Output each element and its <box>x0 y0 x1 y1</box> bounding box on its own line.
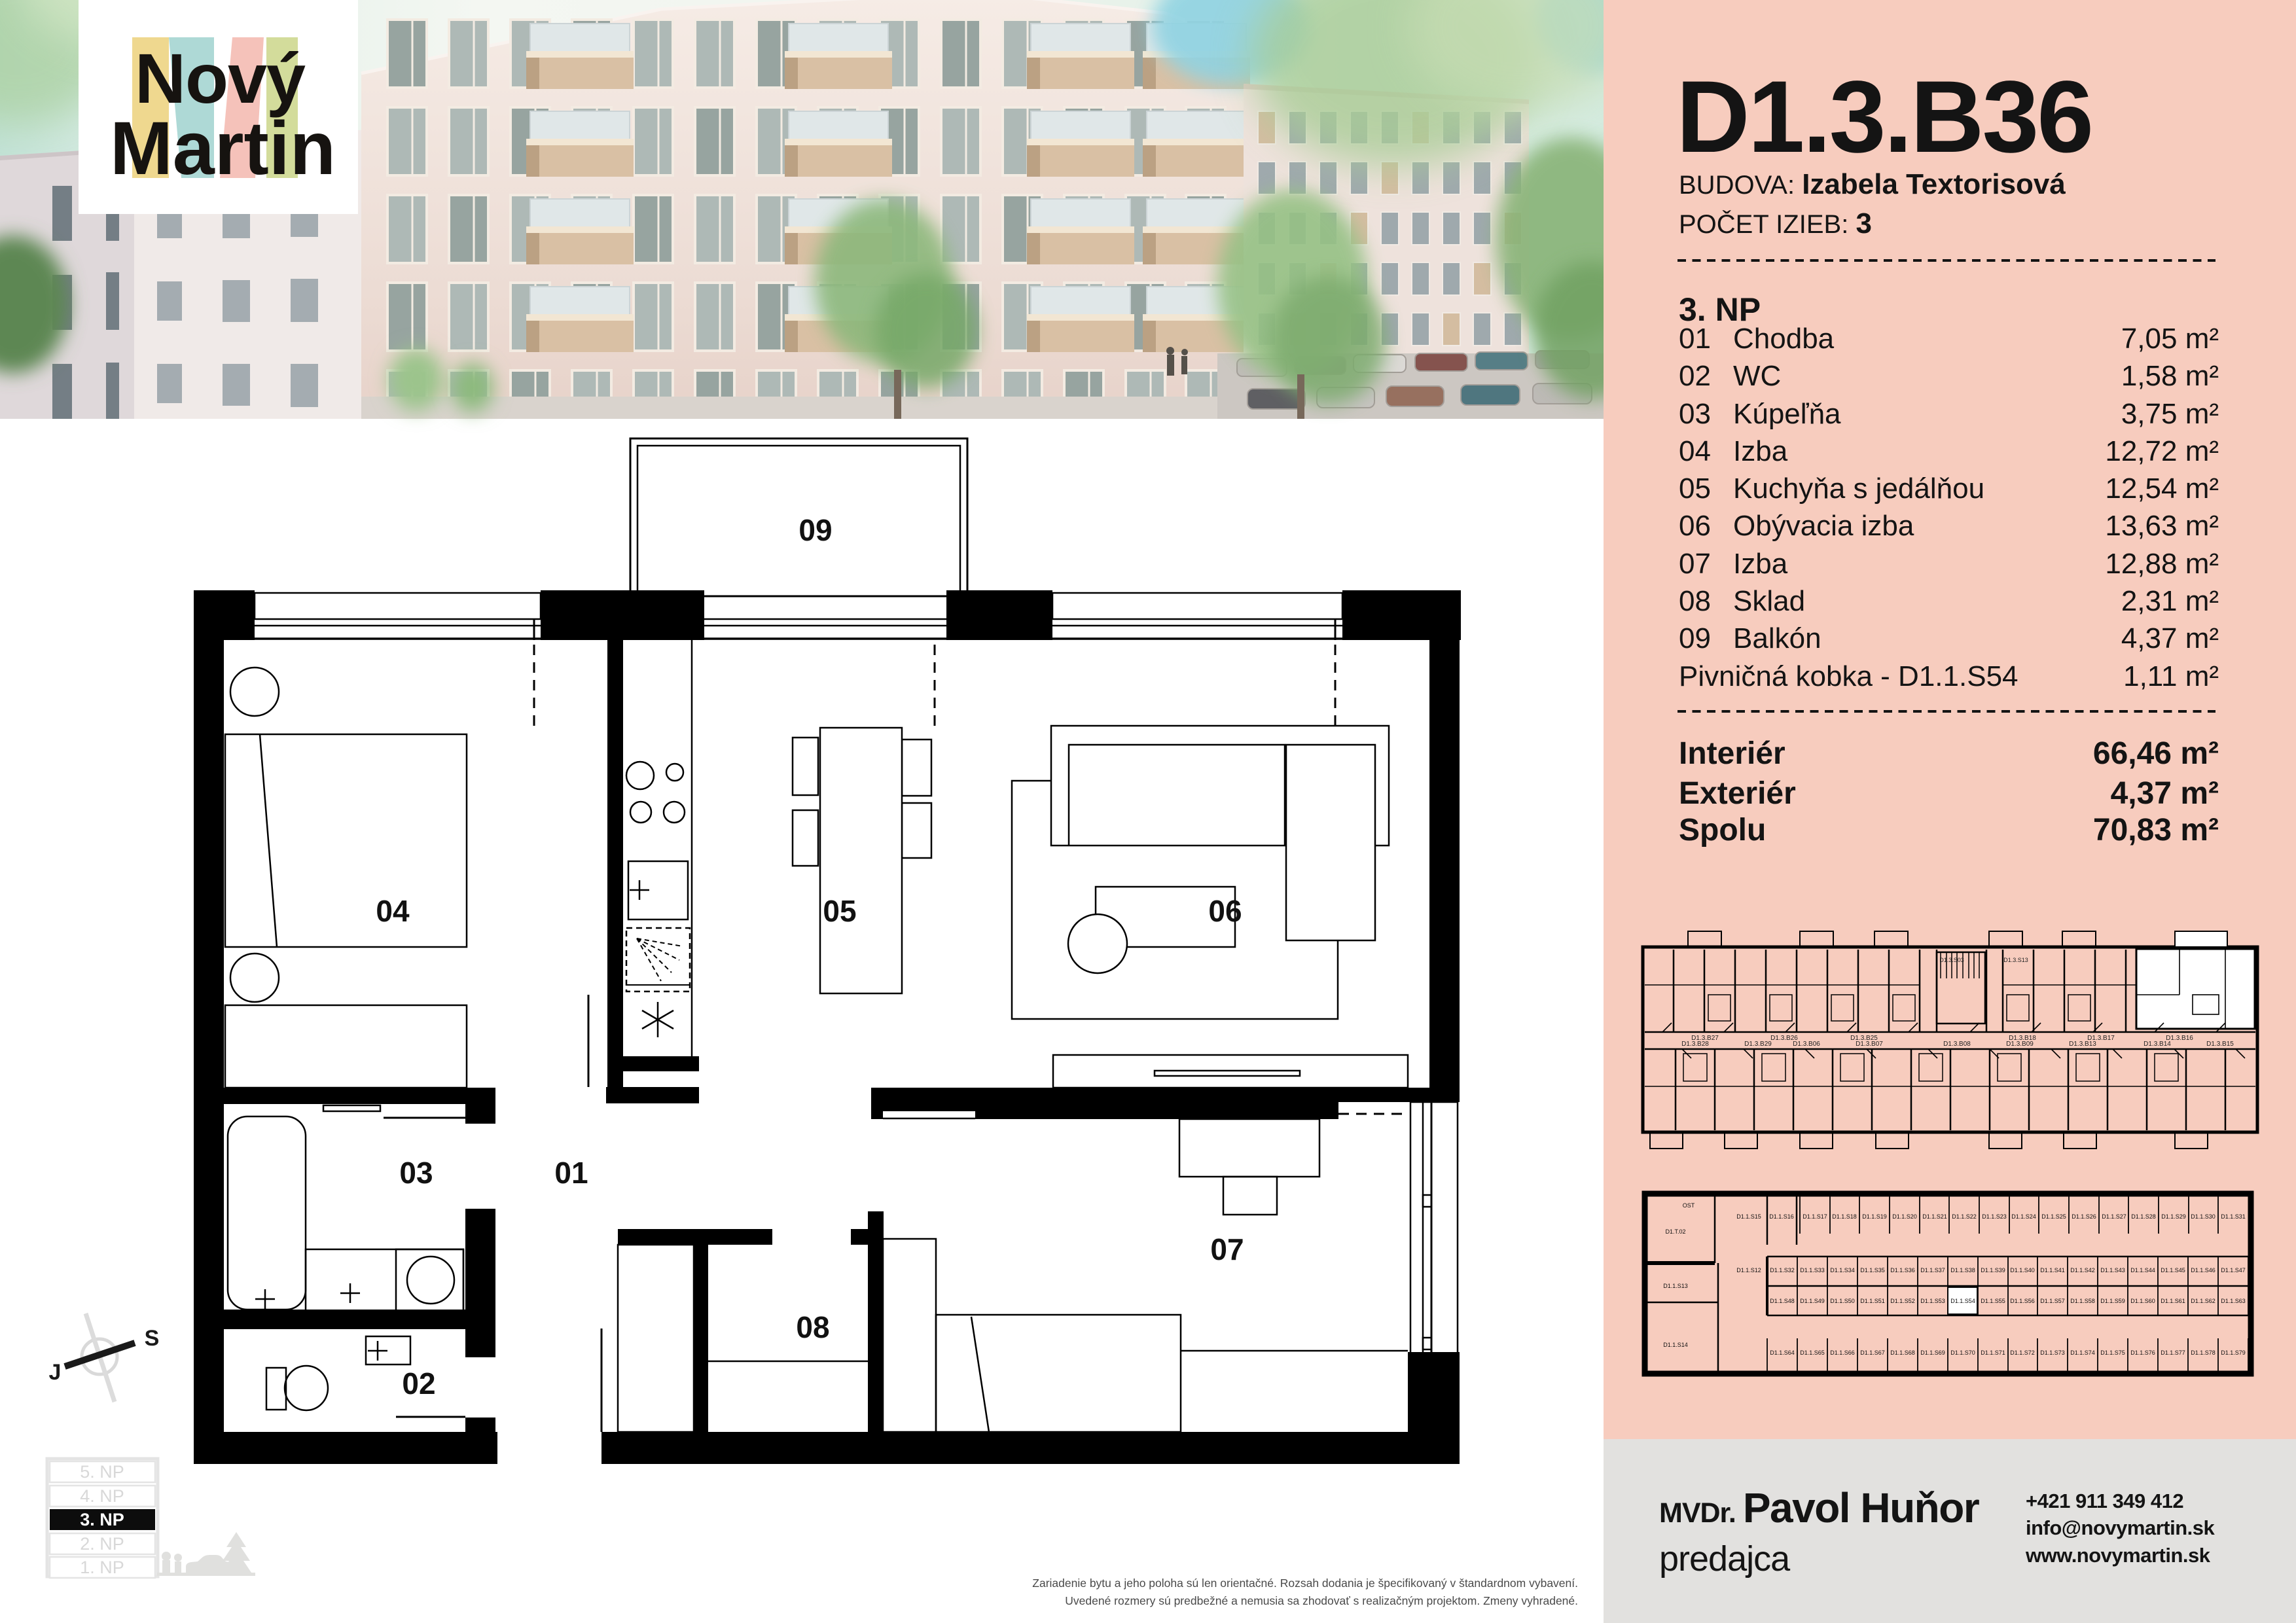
svg-text:05: 05 <box>823 894 856 928</box>
svg-text:D1.1.S46: D1.1.S46 <box>2191 1267 2215 1274</box>
svg-text:D1.1.S18: D1.1.S18 <box>1832 1213 1857 1220</box>
svg-text:D1.3.B36: D1.3.B36 <box>1676 60 2092 174</box>
svg-text:Uvedené rozmery sú predbežné a: Uvedené rozmery sú predbežné a nemusia s… <box>1065 1594 1578 1607</box>
svg-text:S: S <box>145 1326 160 1351</box>
svg-text:08: 08 <box>796 1310 829 1344</box>
svg-text:D1.1.S53: D1.1.S53 <box>1920 1298 1945 1304</box>
svg-text:D1.1.S38: D1.1.S38 <box>1950 1267 1975 1274</box>
svg-text:D1.1.S57: D1.1.S57 <box>2040 1298 2065 1304</box>
svg-text:Balkón: Balkón <box>1733 622 1821 654</box>
svg-text:D1.1.S22: D1.1.S22 <box>1952 1213 1977 1220</box>
svg-text:2,31 m²: 2,31 m² <box>2121 585 2219 617</box>
svg-text:1,58 m²: 1,58 m² <box>2121 360 2219 392</box>
svg-text:D1.3.B09: D1.3.B09 <box>2006 1041 2034 1048</box>
svg-text:D1.1.S24: D1.1.S24 <box>2011 1213 2036 1220</box>
svg-text:D1.1.S75: D1.1.S75 <box>2100 1349 2125 1356</box>
svg-text:D1.1.S15: D1.1.S15 <box>1736 1213 1761 1220</box>
svg-text:02: 02 <box>402 1366 435 1400</box>
svg-text:Sklad: Sklad <box>1733 585 1805 617</box>
svg-text:Martin: Martin <box>110 107 336 190</box>
svg-text:06: 06 <box>1208 894 1242 928</box>
svg-text:D1.1.S72: D1.1.S72 <box>2010 1349 2035 1356</box>
svg-text:Chodba: Chodba <box>1733 323 1835 355</box>
svg-text:D1.1.S52: D1.1.S52 <box>1890 1298 1915 1304</box>
svg-text:D1.1.S16: D1.1.S16 <box>1769 1213 1794 1220</box>
svg-text:D1.1.S36: D1.1.S36 <box>1890 1267 1915 1274</box>
svg-text:D1.1.S74: D1.1.S74 <box>2070 1349 2095 1356</box>
svg-text:3. NP: 3. NP <box>80 1510 124 1529</box>
svg-text:D1.1.S71: D1.1.S71 <box>1981 1349 2005 1356</box>
svg-text:5. NP: 5. NP <box>80 1462 124 1482</box>
svg-text:D1.1.S40: D1.1.S40 <box>2010 1267 2035 1274</box>
svg-text:D1.1.S58: D1.1.S58 <box>2070 1298 2095 1304</box>
svg-text:D1.3.B07: D1.3.B07 <box>1856 1041 1883 1048</box>
svg-text:70,83 m²: 70,83 m² <box>2093 813 2219 847</box>
svg-text:D1.1.S19: D1.1.S19 <box>1862 1213 1887 1220</box>
svg-text:D1.1.S69: D1.1.S69 <box>1920 1349 1945 1356</box>
svg-text:06: 06 <box>1679 510 1711 542</box>
svg-text:D1.3.B13: D1.3.B13 <box>2069 1041 2096 1048</box>
svg-text:D1.1.S64: D1.1.S64 <box>1770 1349 1795 1356</box>
svg-text:D1.1.S13: D1.1.S13 <box>1663 1283 1688 1289</box>
svg-text:D1.3.B06: D1.3.B06 <box>1793 1041 1820 1048</box>
svg-text:2. NP: 2. NP <box>80 1534 124 1554</box>
svg-text:3,75 m²: 3,75 m² <box>2121 398 2219 430</box>
svg-text:08: 08 <box>1679 585 1711 617</box>
svg-text:J: J <box>49 1360 62 1385</box>
svg-text:D1.1.S47: D1.1.S47 <box>2221 1267 2246 1274</box>
svg-text:D1.3.S03: D1.3.S03 <box>1939 957 1964 963</box>
svg-text:Zariadenie bytu a jeho poloha: Zariadenie bytu a jeho poloha sú len ori… <box>1032 1577 1578 1590</box>
svg-text:D1.1.S42: D1.1.S42 <box>2070 1267 2095 1274</box>
svg-text:D1.1.S55: D1.1.S55 <box>1981 1298 2005 1304</box>
svg-text:www.novymartin.sk: www.novymartin.sk <box>2025 1544 2211 1567</box>
svg-text:Spolu: Spolu <box>1679 813 1766 847</box>
svg-text:D1.1.S27: D1.1.S27 <box>2102 1213 2126 1220</box>
svg-text:4,37 m²: 4,37 m² <box>2121 622 2219 654</box>
svg-text:D1.1.S78: D1.1.S78 <box>2191 1349 2215 1356</box>
svg-text:13,63 m²: 13,63 m² <box>2105 510 2219 542</box>
svg-text:D1.1.S25: D1.1.S25 <box>2041 1213 2066 1220</box>
svg-text:66,46 m²: 66,46 m² <box>2093 736 2219 771</box>
svg-text:4,37 m²: 4,37 m² <box>2111 776 2219 811</box>
svg-text:D1.1.S31: D1.1.S31 <box>2221 1213 2246 1220</box>
svg-text:01: 01 <box>554 1156 588 1190</box>
svg-text:D1.1.S20: D1.1.S20 <box>1892 1213 1917 1220</box>
svg-text:D1.T.02: D1.T.02 <box>1665 1228 1685 1235</box>
svg-text:D1.1.S17: D1.1.S17 <box>1803 1213 1827 1220</box>
svg-text:D1.1.S21: D1.1.S21 <box>1922 1213 1947 1220</box>
svg-text:D1.1.S62: D1.1.S62 <box>2191 1298 2215 1304</box>
svg-text:D1.1.S59: D1.1.S59 <box>2100 1298 2125 1304</box>
svg-text:D1.1.S37: D1.1.S37 <box>1920 1267 1945 1274</box>
svg-text:POČET IZIEB: 3: POČET IZIEB: 3 <box>1679 207 1872 240</box>
svg-text:12,54 m²: 12,54 m² <box>2105 473 2219 505</box>
svg-text:D1.1.S34: D1.1.S34 <box>1830 1267 1855 1274</box>
svg-text:Izba: Izba <box>1733 548 1788 580</box>
svg-text:+421 911 349 412: +421 911 349 412 <box>2026 1489 2183 1512</box>
svg-text:4. NP: 4. NP <box>80 1486 124 1506</box>
svg-text:Pivničná kobka - D1.1.S54: Pivničná kobka - D1.1.S54 <box>1679 660 2018 692</box>
svg-text:D1.1.S48: D1.1.S48 <box>1770 1298 1795 1304</box>
svg-text:12,88 m²: 12,88 m² <box>2105 548 2219 580</box>
svg-text:D1.1.S28: D1.1.S28 <box>2131 1213 2156 1220</box>
svg-text:D1.1.S26: D1.1.S26 <box>2072 1213 2096 1220</box>
svg-text:05: 05 <box>1679 473 1711 505</box>
svg-text:D1.1.S70: D1.1.S70 <box>1950 1349 1975 1356</box>
svg-text:D1.1.S68: D1.1.S68 <box>1890 1349 1915 1356</box>
svg-text:03: 03 <box>399 1156 433 1190</box>
svg-text:D1.1.S60: D1.1.S60 <box>2130 1298 2155 1304</box>
svg-text:D1.1.S51: D1.1.S51 <box>1860 1298 1885 1304</box>
svg-text:D1.1.S43: D1.1.S43 <box>2100 1267 2125 1274</box>
svg-text:02: 02 <box>1679 360 1711 392</box>
svg-text:09: 09 <box>1679 622 1711 654</box>
svg-text:7,05 m²: 7,05 m² <box>2121 323 2219 355</box>
svg-text:D1.3.B29: D1.3.B29 <box>1744 1041 1772 1048</box>
svg-text:04: 04 <box>1679 435 1711 467</box>
svg-text:D1.1.S44: D1.1.S44 <box>2130 1267 2155 1274</box>
svg-text:D1.1.S45: D1.1.S45 <box>2161 1267 2185 1274</box>
svg-text:Obývacia izba: Obývacia izba <box>1733 510 1914 542</box>
svg-text:D1.1.S12: D1.1.S12 <box>1736 1267 1761 1274</box>
svg-text:OST: OST <box>1683 1202 1695 1209</box>
svg-text:D1.1.S23: D1.1.S23 <box>1982 1213 2007 1220</box>
svg-text:09: 09 <box>798 513 832 547</box>
svg-text:D1.1.S65: D1.1.S65 <box>1800 1349 1825 1356</box>
svg-text:Nový: Nový <box>135 39 306 118</box>
svg-text:D1.1.S56: D1.1.S56 <box>2010 1298 2035 1304</box>
svg-text:D1.1.S63: D1.1.S63 <box>2221 1298 2246 1304</box>
svg-text:D1.3.B28: D1.3.B28 <box>1681 1041 1709 1048</box>
svg-text:12,72 m²: 12,72 m² <box>2105 435 2219 467</box>
svg-text:D1.1.S32: D1.1.S32 <box>1770 1267 1795 1274</box>
svg-text:predajca: predajca <box>1659 1539 1791 1578</box>
svg-text:07: 07 <box>1210 1232 1244 1266</box>
svg-text:D1.1.S33: D1.1.S33 <box>1800 1267 1825 1274</box>
svg-text:D1.3.B14: D1.3.B14 <box>2144 1041 2171 1048</box>
svg-text:D1.1.S30: D1.1.S30 <box>2191 1213 2215 1220</box>
svg-text:D1.1.S35: D1.1.S35 <box>1860 1267 1885 1274</box>
svg-text:D1.1.S76: D1.1.S76 <box>2130 1349 2155 1356</box>
svg-text:07: 07 <box>1679 548 1711 580</box>
svg-text:D1.1.S41: D1.1.S41 <box>2040 1267 2065 1274</box>
svg-text:D1.1.S61: D1.1.S61 <box>2161 1298 2185 1304</box>
svg-text:D1.1.S39: D1.1.S39 <box>1981 1267 2005 1274</box>
svg-text:D1.1.S14: D1.1.S14 <box>1663 1342 1688 1348</box>
svg-text:Kuchyňa s jedálňou: Kuchyňa s jedálňou <box>1733 473 1984 505</box>
svg-text:04: 04 <box>376 894 410 928</box>
svg-text:WC: WC <box>1733 360 1781 392</box>
svg-text:D1.1.S79: D1.1.S79 <box>2221 1349 2246 1356</box>
svg-text:D1.1.S66: D1.1.S66 <box>1830 1349 1855 1356</box>
svg-text:info@novymartin.sk: info@novymartin.sk <box>2026 1516 2215 1539</box>
svg-text:D1.1.S29: D1.1.S29 <box>2161 1213 2186 1220</box>
svg-text:D1.1.S49: D1.1.S49 <box>1800 1298 1825 1304</box>
svg-text:01: 01 <box>1679 323 1711 355</box>
svg-text:Exteriér: Exteriér <box>1679 776 1796 811</box>
svg-text:1,11 m²: 1,11 m² <box>2123 660 2219 692</box>
svg-text:D1.1.S67: D1.1.S67 <box>1860 1349 1885 1356</box>
svg-text:D1.3.S13: D1.3.S13 <box>2003 957 2028 963</box>
svg-text:D1.3.B08: D1.3.B08 <box>1943 1041 1971 1048</box>
svg-text:BUDOVA: Izabela Textorisová: BUDOVA: Izabela Textorisová <box>1679 168 2066 200</box>
svg-text:D1.1.S77: D1.1.S77 <box>2161 1349 2185 1356</box>
svg-text:Izba: Izba <box>1733 435 1788 467</box>
svg-text:1. NP: 1. NP <box>80 1558 124 1577</box>
svg-text:D1.3.B15: D1.3.B15 <box>2206 1041 2234 1048</box>
svg-text:Interiér: Interiér <box>1679 736 1785 771</box>
svg-text:D1.1.S54: D1.1.S54 <box>1950 1298 1975 1304</box>
svg-text:D1.1.S73: D1.1.S73 <box>2040 1349 2065 1356</box>
svg-text:03: 03 <box>1679 398 1711 430</box>
svg-text:D1.1.S50: D1.1.S50 <box>1830 1298 1855 1304</box>
svg-text:Kúpeľňa: Kúpeľňa <box>1733 398 1841 430</box>
